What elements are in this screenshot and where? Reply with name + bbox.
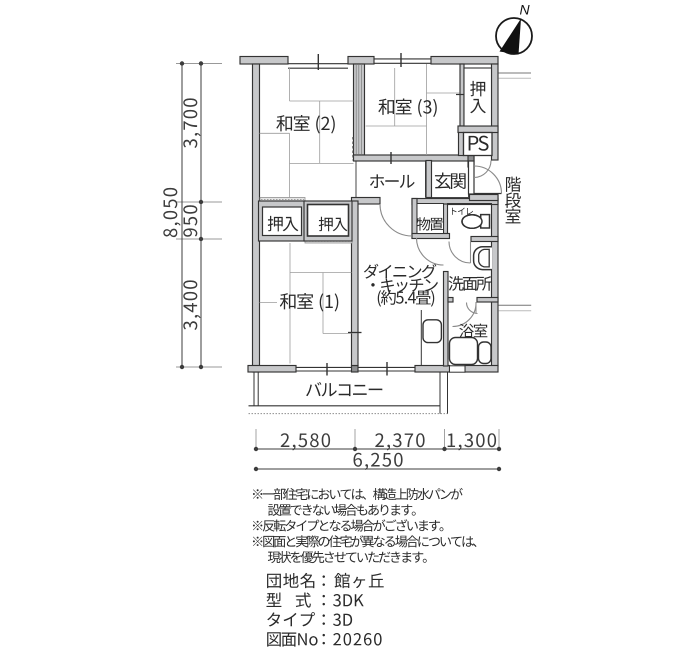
svg-text:N: N (520, 2, 531, 18)
